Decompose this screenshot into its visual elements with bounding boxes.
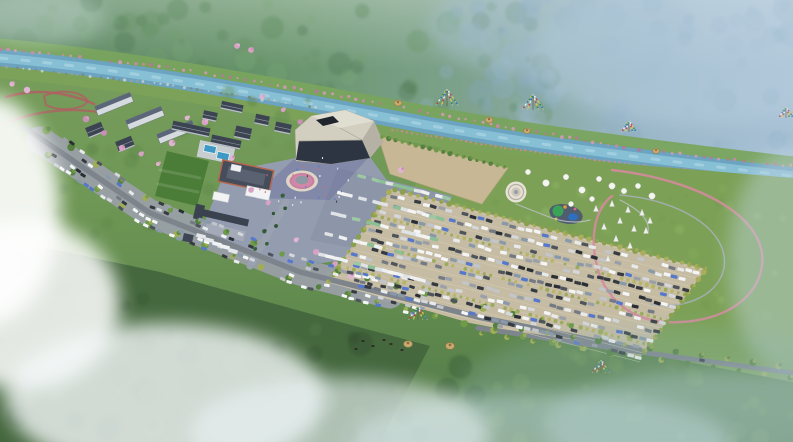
riverside-pink-path <box>535 151 537 153</box>
riverbank-blossom-shrub <box>379 102 382 105</box>
river-rock <box>53 71 55 73</box>
riverside-pink-path <box>574 156 576 158</box>
playground-green-circle <box>553 206 564 217</box>
riverbank-blossom-shrub <box>228 76 231 79</box>
terrain-spot <box>222 86 235 99</box>
prayer-flag-cone <box>440 97 442 99</box>
riverside-pink-path <box>603 160 605 162</box>
terrain-spot <box>297 25 308 36</box>
parking-hedge <box>676 305 680 309</box>
river-rock <box>107 77 109 79</box>
dome-tent <box>649 193 655 199</box>
terrain-spot <box>396 365 407 376</box>
prayer-flag-cone <box>450 94 452 96</box>
riverbank-blossom-shrub <box>372 101 374 103</box>
riverbank-blossom-shrub <box>269 84 271 86</box>
river-rock <box>190 87 192 89</box>
riverside-pink-path <box>430 135 432 137</box>
parking-hedge <box>571 294 575 298</box>
parking-hedge <box>400 221 403 224</box>
riverbank-blossom-shrub <box>362 99 365 102</box>
dirt-hedge <box>409 142 411 144</box>
riverside-pink-path <box>500 146 502 148</box>
parking-hedge <box>602 303 605 306</box>
parking-hedge <box>383 197 386 200</box>
riverbank-blossom-shrub <box>69 55 72 58</box>
parking-hedge <box>476 270 480 274</box>
parking-hedge <box>547 318 551 322</box>
pedestrian <box>318 197 319 199</box>
terrain-spot <box>348 332 372 356</box>
dome-tent <box>543 180 550 187</box>
prayer-flag-cone <box>536 98 538 100</box>
parking-hedge <box>552 290 556 294</box>
riverside-pink-path <box>539 152 541 154</box>
parking-hedge <box>658 255 661 258</box>
parking-hedge <box>558 291 562 295</box>
blossom-tree <box>296 237 299 240</box>
parking-hedge <box>489 274 492 277</box>
parking-hedge <box>697 264 701 268</box>
prayer-flag-cone <box>411 314 413 316</box>
pedestrian <box>305 186 306 188</box>
parking-hedge <box>469 238 473 242</box>
blossom-tree <box>316 249 319 252</box>
prayer-flag-cone <box>409 317 411 319</box>
riverside-pink-path <box>555 154 557 156</box>
riverbank-blossom-shrub <box>38 51 41 54</box>
riverbank-blossom-shrub <box>253 80 256 83</box>
playground-blue-pool <box>568 213 578 220</box>
parking-hedge <box>635 248 639 252</box>
roadside-tree <box>507 335 510 338</box>
parking-hedge <box>666 320 669 323</box>
riverside-pink-path <box>594 159 596 161</box>
parking-hedge <box>596 301 600 305</box>
roadside-tree <box>260 264 264 268</box>
blossom-tree <box>232 155 235 158</box>
prayer-flag-cone <box>634 129 636 131</box>
parking-hedge <box>620 244 623 247</box>
parking-hedge <box>387 218 390 221</box>
riverside-pink-path <box>396 130 398 132</box>
riverside-pink-path <box>411 132 413 134</box>
riverbank-blossom-shrub <box>671 152 674 155</box>
terrain-spot <box>287 142 296 151</box>
parking-hedge <box>488 243 491 246</box>
thatched-pavilion <box>526 129 528 131</box>
prayer-flag-cone <box>443 97 445 99</box>
parking-hedge <box>651 284 655 288</box>
parking-hedge <box>659 317 662 320</box>
dirt-hedge <box>490 162 493 165</box>
prayer-flag-cone <box>631 124 633 126</box>
parking-hedge <box>664 288 668 292</box>
parking-hedge <box>528 313 532 317</box>
dome-tent <box>609 183 615 189</box>
riverbank-blossom-shrub <box>703 156 706 159</box>
river-rock <box>71 73 73 75</box>
prayer-flag-cone <box>442 94 444 96</box>
riverbank-blossom-shrub <box>403 106 406 109</box>
parking-hedge <box>554 319 558 323</box>
river-rock <box>208 90 210 92</box>
riverbank-blossom-shrub <box>189 69 191 71</box>
riverbank-blossom-shrub <box>173 68 175 70</box>
parking-hedge <box>539 286 543 290</box>
parking-hedge <box>451 264 454 267</box>
riverbank-blossom-shrub <box>496 124 500 128</box>
riverbank-blossom-shrub <box>615 144 618 147</box>
prayer-flag-cone <box>425 317 427 319</box>
prayer-flag-cone <box>626 127 628 129</box>
prayer-flag-cone <box>456 102 458 104</box>
parking-hedge <box>550 227 553 230</box>
parking-hedge <box>456 235 459 238</box>
thatched-pavilion <box>488 118 490 120</box>
parking-hedge <box>639 281 643 285</box>
riverside-pink-path <box>490 144 492 146</box>
river-rock <box>202 90 204 92</box>
prayer-flag-cone <box>423 314 425 316</box>
parking-hedge <box>525 253 529 257</box>
parking-hedge <box>402 189 405 192</box>
pedestrian <box>319 175 320 177</box>
grazing-yak <box>382 339 385 341</box>
dirt-hedge <box>382 135 384 137</box>
prayer-flag-cone <box>632 126 634 128</box>
roadside-tree <box>523 333 527 337</box>
blossom-tree <box>300 119 303 122</box>
riverside-pink-path <box>391 129 393 131</box>
terrain-spot <box>120 300 131 311</box>
parking-hedge <box>447 292 450 295</box>
parking-hedge <box>514 280 517 283</box>
riverside-pink-path <box>460 140 462 142</box>
grazing-yak <box>371 345 374 347</box>
parking-hedge <box>426 196 429 199</box>
parking-hedge <box>441 200 443 202</box>
prayer-flag-cone <box>630 126 632 128</box>
riverbank-blossom-shrub <box>727 158 730 161</box>
parking-hedge <box>480 210 482 212</box>
prayer-flag-cone <box>529 104 531 106</box>
river-rock <box>35 69 37 71</box>
prayer-flag-cone <box>529 101 531 103</box>
dome-tent <box>589 196 594 201</box>
parking-hedge <box>338 264 341 267</box>
terrain-spot <box>86 143 98 155</box>
parking-hedge <box>653 315 656 318</box>
parking-hedge <box>607 273 611 277</box>
prayer-flag-cone <box>541 106 543 108</box>
pedestrian <box>295 197 296 199</box>
prayer-flag-cone <box>420 310 422 312</box>
riverbank-blossom-shrub <box>213 74 216 77</box>
parking-hedge <box>604 241 607 244</box>
parking-hedge <box>620 277 624 281</box>
parking-hedge <box>462 236 466 240</box>
dome-tent <box>568 201 573 206</box>
parking-hedge <box>577 296 580 299</box>
dome-tent <box>525 169 530 174</box>
riverbank-blossom-shrub <box>157 65 160 68</box>
dirt-hedge <box>484 160 486 162</box>
grazing-yak <box>389 343 392 345</box>
riverside-pink-path <box>480 143 482 145</box>
riverbank-blossom-shrub <box>717 158 720 161</box>
parking-hedge <box>689 262 692 265</box>
prayer-flag-cone <box>523 106 525 108</box>
riverside-pink-path <box>589 159 591 161</box>
parking-hedge <box>651 253 653 255</box>
riverside-pink-path <box>530 150 532 152</box>
parking-hedge <box>496 214 498 216</box>
blossom-tree <box>237 43 240 46</box>
terrain-spot <box>235 50 256 71</box>
riverbank-blossom-shrub <box>418 109 421 112</box>
prayer-flag-cone <box>788 115 790 117</box>
parking-hedge <box>558 229 561 232</box>
dirt-hedge <box>497 164 499 166</box>
river-rock <box>16 67 19 70</box>
parking-hedge <box>640 312 644 316</box>
prayer-flag-cone <box>631 127 633 129</box>
prayer-flag-cone <box>449 97 451 99</box>
riverbank-blossom-shrub <box>622 146 626 150</box>
prayer-flag-cone <box>438 99 440 101</box>
riverside-pink-path <box>421 134 423 136</box>
parking-hedge <box>413 224 416 227</box>
riverside-pink-path <box>495 145 497 147</box>
parking-hedge <box>406 222 409 225</box>
parking-hedge <box>402 280 406 284</box>
terrain-spot <box>168 29 182 43</box>
parking-hedge <box>507 248 510 251</box>
thatched-pavilion <box>655 149 657 151</box>
riverside-pink-path <box>435 135 437 137</box>
river-rock <box>236 94 238 96</box>
dirt-hedge <box>477 159 479 161</box>
terrain-spot <box>139 11 163 35</box>
dirt-hedge <box>429 147 432 150</box>
parking-hedge <box>526 221 529 224</box>
parking-hedge <box>346 267 349 270</box>
parking-hedge <box>352 268 356 272</box>
river-rock <box>291 103 293 105</box>
riverside-pink-path <box>520 149 522 151</box>
riverbank-blossom-shrub <box>292 86 296 90</box>
blossom-tree <box>202 119 209 126</box>
prayer-flag-cone <box>534 98 536 100</box>
prayer-flag-cone <box>452 97 454 99</box>
river-rock <box>267 98 270 101</box>
roadside-tree <box>233 254 236 257</box>
parking-hedge <box>348 250 350 252</box>
terrain-spot <box>552 182 559 189</box>
dome-tent <box>621 188 627 194</box>
prayer-flag-cone <box>534 96 536 98</box>
dirt-hedge <box>463 155 465 157</box>
riverbank-blossom-shrub <box>244 78 247 81</box>
prayer-flag-cone <box>536 104 538 106</box>
terrain-spot <box>89 229 100 240</box>
parking-hedge <box>381 216 385 220</box>
prayer-flag-cone <box>622 129 624 131</box>
parking-hedge <box>410 191 413 194</box>
terrain-spot <box>329 325 342 338</box>
prayer-flag-cone <box>527 101 529 103</box>
parking-hedge <box>565 231 568 234</box>
parking-hedge <box>449 201 452 204</box>
terrain-spot <box>410 77 418 85</box>
riverbank-blossom-shrub <box>78 55 82 59</box>
terrain-spot <box>658 215 666 223</box>
blossom-tree <box>172 140 175 143</box>
prayer-flag-cone <box>441 102 443 104</box>
terrain-spot <box>491 198 500 207</box>
parking-hedge <box>419 226 422 229</box>
prayer-flag-cone <box>420 314 422 316</box>
blossom-tree <box>104 130 107 133</box>
parking-hedge <box>632 280 636 284</box>
river-rock <box>285 102 287 104</box>
terrain-spot <box>526 215 531 220</box>
parking-hedge <box>532 254 536 258</box>
riverbank-blossom-shrub <box>544 133 546 135</box>
river-rock <box>183 86 186 89</box>
terrain-spot <box>119 13 138 32</box>
terrain-spot <box>310 49 320 59</box>
river-rock <box>28 68 30 70</box>
riverside-pink-path <box>451 138 453 140</box>
grazing-yak <box>354 348 357 350</box>
parking-hedge <box>658 287 661 290</box>
riverside-pink-path <box>549 153 551 155</box>
terrain-spot <box>58 184 68 194</box>
prayer-flag-cone <box>633 127 635 129</box>
dome-tent <box>635 183 640 188</box>
parking-hedge <box>395 188 398 191</box>
riverbank-blossom-shrub <box>204 71 207 74</box>
parking-hedge <box>538 256 541 259</box>
terrain-spot <box>768 131 787 150</box>
riverside-pink-path <box>406 131 408 133</box>
dirt-hedge <box>416 143 419 146</box>
parking-hedge <box>422 286 425 289</box>
pedestrian <box>336 201 337 203</box>
riverbank-blossom-shrub <box>340 95 343 98</box>
terrain-spot <box>136 292 149 305</box>
riverbank-blossom-shrub <box>662 150 665 153</box>
roadside-tree <box>464 320 468 324</box>
terrain-spot <box>63 214 74 225</box>
riverside-pink-path <box>570 155 572 157</box>
columnar-tree <box>255 247 257 249</box>
parking-hedge <box>643 250 646 253</box>
riverside-pink-path <box>465 140 467 142</box>
grazing-yak <box>400 349 403 351</box>
parking-hedge <box>432 259 436 263</box>
riverbank-blossom-shrub <box>347 95 350 98</box>
riverside-pink-path <box>485 144 487 146</box>
parking-hedge <box>460 296 463 299</box>
parking-hedge <box>490 303 494 307</box>
prayer-flag-cone <box>525 104 527 106</box>
riverbank-blossom-shrub <box>505 126 507 128</box>
dirt-hedge <box>470 156 473 159</box>
prayer-flag-cone <box>420 312 422 314</box>
blossom-tree <box>141 151 144 154</box>
prayer-flag-cone <box>419 307 421 309</box>
riverbank-blossom-shrub <box>277 84 280 87</box>
parking-hedge <box>698 277 701 280</box>
parking-hedge <box>670 290 673 293</box>
riverbank-blossom-shrub <box>474 120 476 122</box>
river-rock <box>130 79 133 82</box>
aerial-site-rendering: Aerial rendering of a riverside mountain… <box>0 0 793 442</box>
prayer-flag-cone <box>631 129 633 131</box>
dirt-hedge <box>389 136 392 139</box>
parking-hedge <box>612 243 614 245</box>
riverbank-blossom-shrub <box>687 155 689 157</box>
riverbank-blossom-shrub <box>733 158 736 161</box>
terrain-spot <box>172 40 193 61</box>
terrain-spot <box>217 30 228 41</box>
river-rock <box>154 82 156 84</box>
pedestrian <box>259 188 260 190</box>
riverbank-blossom-shrub <box>331 92 334 95</box>
parking-hedge <box>389 190 392 193</box>
parking-hedge <box>682 261 684 263</box>
riverbank-blossom-shrub <box>14 49 17 52</box>
parking-hedge <box>527 283 530 286</box>
columnar-tree <box>273 212 275 214</box>
prayer-flag-cone <box>414 310 416 312</box>
blossom-tree <box>251 47 254 50</box>
columnar-tree <box>264 229 267 232</box>
prayer-flag-cone <box>444 94 446 96</box>
prayer-flag-cone <box>528 106 530 108</box>
riverbank-blossom-shrub <box>118 60 122 64</box>
riverbank-blossom-shrub <box>511 127 515 131</box>
terrain-spot <box>542 91 561 110</box>
prayer-flag-cone <box>415 312 417 314</box>
playground-pink-dot <box>574 208 577 211</box>
riverbank-blossom-shrub <box>6 48 10 52</box>
riverbank-blossom-shrub <box>300 88 303 91</box>
riverbank-blossom-shrub <box>560 135 564 139</box>
riverbank-blossom-shrub <box>31 51 35 55</box>
terrain-spot <box>202 183 215 196</box>
parking-hedge <box>472 299 475 302</box>
river-rock <box>142 80 145 83</box>
roadside-tree <box>435 313 439 317</box>
prayer-flag-cone <box>422 312 424 314</box>
parking-hedge <box>358 235 361 238</box>
parking-hedge <box>584 298 587 301</box>
dirt-hedge <box>422 145 425 148</box>
parking-hedge <box>464 267 468 271</box>
thatched-pavilion <box>449 344 452 347</box>
prayer-flag-cone <box>450 99 452 101</box>
prayer-flag-cone <box>454 99 456 101</box>
riverbank-blossom-shrub <box>142 63 145 66</box>
prayer-flag-cone <box>416 310 418 312</box>
riverside-pink-path <box>426 135 428 137</box>
river-rock <box>112 77 115 80</box>
terrain-spot <box>200 2 212 14</box>
